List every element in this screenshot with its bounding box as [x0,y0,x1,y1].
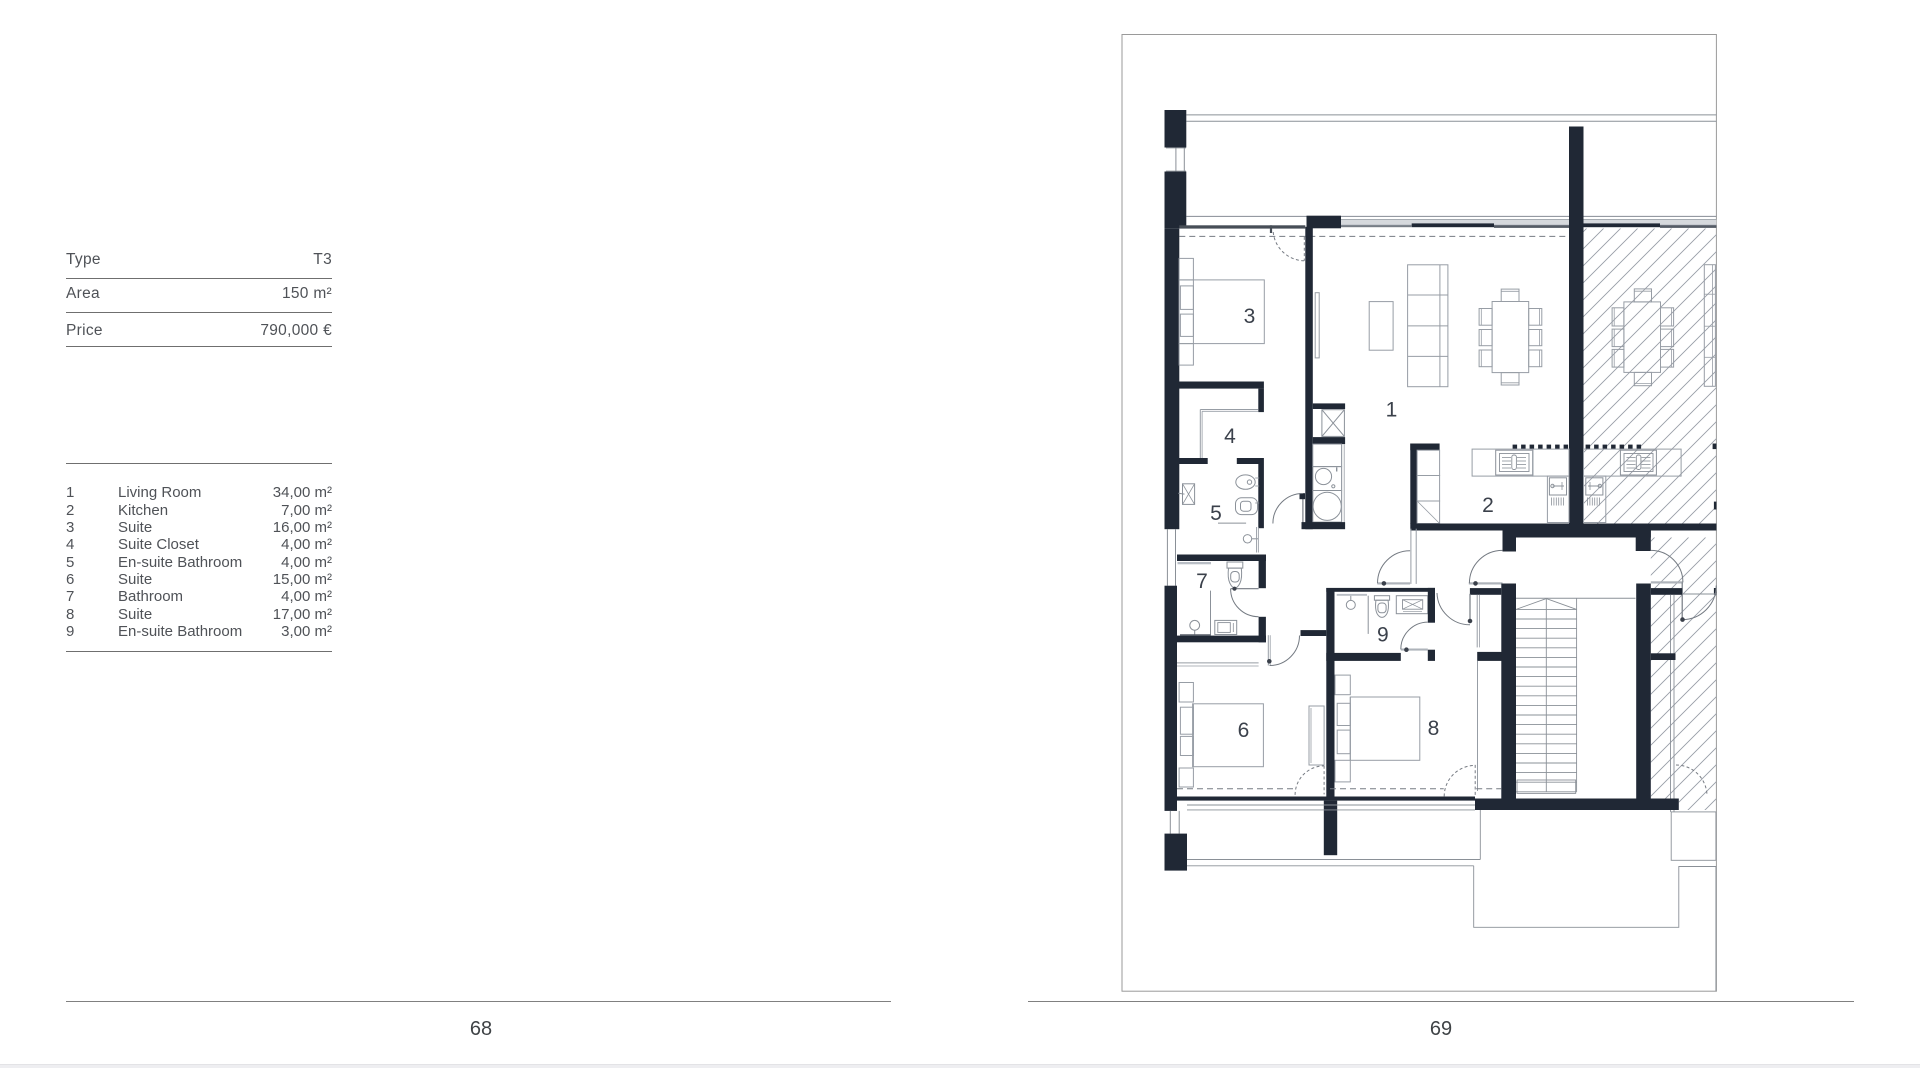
svg-text:4: 4 [1224,425,1236,448]
svg-text:6: 6 [1238,719,1250,742]
svg-text:5: 5 [1210,502,1222,525]
svg-text:2: 2 [1482,494,1494,517]
svg-text:7: 7 [1196,570,1208,593]
svg-text:8: 8 [1428,717,1440,740]
svg-text:9: 9 [1377,624,1389,647]
svg-text:3: 3 [1244,305,1256,328]
svg-text:1: 1 [1386,399,1398,422]
